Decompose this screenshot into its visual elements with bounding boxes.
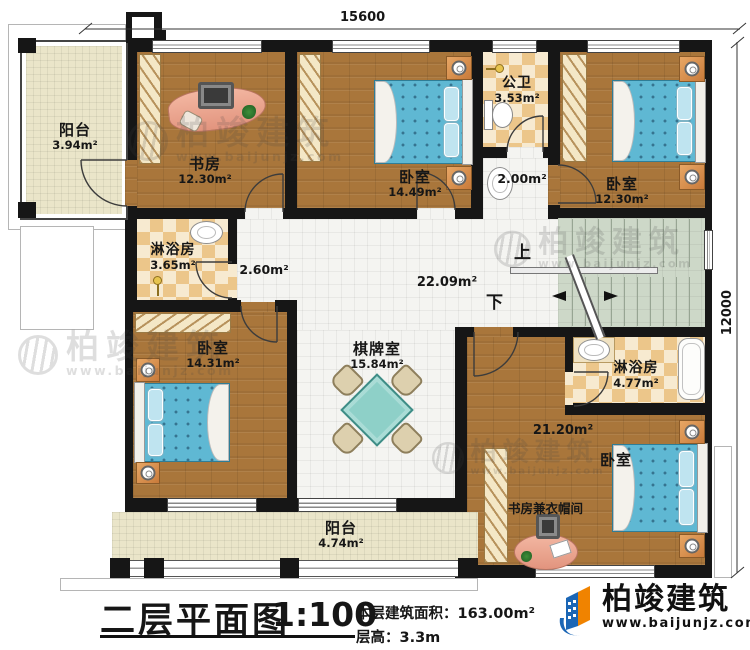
- bed-sheet-fold: [375, 81, 397, 163]
- lamp-icon: [141, 466, 156, 481]
- room-label-bedroom-br: 卧室: [576, 452, 656, 469]
- nightstand: [446, 56, 472, 80]
- room-label-hall-main: 22.09m²: [405, 276, 489, 291]
- pillow: [679, 451, 694, 487]
- dimension-right: 12000: [720, 290, 735, 335]
- pillow: [677, 122, 692, 155]
- bathtub: [678, 338, 705, 400]
- wall: [228, 300, 241, 312]
- nightstand: [679, 56, 705, 82]
- window: [587, 40, 680, 53]
- faucet-icon: [495, 64, 504, 73]
- room-label-wash-area: 2.00m²: [492, 172, 552, 186]
- door-opening: [245, 208, 283, 219]
- bed-headboard: [697, 443, 708, 533]
- window: [492, 40, 537, 53]
- window: [704, 230, 713, 270]
- wall: [287, 310, 297, 330]
- wardrobe: [135, 313, 231, 333]
- column: [18, 38, 36, 53]
- drain-pipe: [157, 284, 159, 296]
- window: [332, 40, 430, 53]
- window: [152, 40, 262, 53]
- room-label-bedroom-br-area: 21.20m²: [522, 424, 604, 439]
- bed-headboard: [462, 79, 473, 165]
- lamp-icon: [685, 170, 700, 185]
- lamp-icon: [685, 539, 700, 554]
- wall: [513, 327, 705, 337]
- lamp-icon: [685, 62, 700, 77]
- window: [298, 498, 397, 512]
- room-label-balcony-tl: 阳台 3.94m²: [35, 122, 115, 152]
- brand-name: 柏竣建筑: [602, 584, 750, 616]
- pillow: [148, 424, 163, 456]
- eave-outline-bottom: [60, 578, 478, 591]
- shaft-opening: [132, 17, 154, 38]
- window: [167, 498, 257, 512]
- door-opening: [507, 147, 543, 158]
- room-label-shower-left: 淋浴房 3.65m²: [133, 243, 213, 272]
- room-label-study-cloak: 书房兼衣帽间: [483, 502, 608, 516]
- pillow: [679, 489, 694, 525]
- nightstand: [679, 164, 705, 190]
- eave-outline-right: [714, 446, 732, 578]
- door-opening: [241, 302, 275, 312]
- pillow: [444, 87, 459, 121]
- pillow: [148, 389, 163, 421]
- floor-area-note: 本层建筑面积：163.00m²: [356, 602, 535, 623]
- bed: [135, 383, 230, 462]
- title-underline: [100, 635, 355, 638]
- door-opening: [483, 208, 548, 219]
- door-opening: [565, 372, 573, 405]
- computer-icon: [198, 82, 234, 109]
- column: [280, 558, 299, 578]
- stair-handrail: [510, 267, 658, 274]
- nightstand: [679, 534, 705, 558]
- door-opening: [474, 327, 513, 337]
- column: [144, 558, 164, 578]
- sink: [578, 339, 610, 361]
- wardrobe: [139, 54, 161, 164]
- lamp-icon: [141, 363, 156, 378]
- stair-direction-arrow: [604, 291, 618, 301]
- floor-height-note: 层高：3.3m: [356, 626, 440, 647]
- nightstand: [679, 420, 705, 444]
- room-label-hall-west: 2.60m²: [233, 263, 295, 277]
- room-label-study: 书房 12.30m²: [155, 156, 255, 186]
- bed-headboard: [134, 382, 145, 463]
- computer-icon: [536, 514, 560, 539]
- eave-outline-left: [20, 226, 94, 330]
- stair-direction-arrow: [552, 291, 566, 301]
- bed: [612, 80, 705, 162]
- door-opening: [125, 160, 137, 206]
- room-label-bedroom-top-right: 卧室 12.30m²: [572, 176, 672, 206]
- nightstand: [136, 462, 160, 484]
- brand-logo-icon: [556, 584, 596, 638]
- lamp-icon: [452, 61, 467, 76]
- wall: [228, 219, 237, 264]
- bed-sheet-fold: [207, 384, 229, 461]
- floor-plan: 上 下 15600 12000 阳台 3.94m² 书房: [0, 0, 750, 650]
- stair-treads: [572, 219, 702, 267]
- bed: [374, 80, 472, 164]
- sink: [190, 221, 223, 244]
- bed-sheet-fold: [613, 81, 635, 161]
- lamp-icon: [685, 425, 700, 440]
- room-label-bedroom-left: 卧室 14.31m²: [163, 340, 263, 370]
- wall: [455, 327, 474, 337]
- nightstand: [136, 358, 160, 382]
- balcony-floor: [112, 512, 478, 561]
- room-label-balcony-bottom: 阳台 4.74m²: [301, 520, 381, 550]
- brand-website: www.baijunjz.com: [602, 616, 750, 631]
- wardrobe: [299, 54, 321, 162]
- room-label-public-bath: 公卫 3.53m²: [477, 76, 557, 105]
- watermark-logo-icon: [18, 335, 58, 375]
- stair-up-label: 上: [514, 238, 531, 263]
- column: [18, 202, 36, 218]
- faucet-pipe: [486, 68, 496, 70]
- column: [110, 558, 130, 578]
- brand-block: 柏竣建筑 www.baijunjz.com: [556, 584, 750, 638]
- toilet-icon: [492, 102, 513, 128]
- stair-down-label: 下: [486, 288, 503, 313]
- pillow: [444, 123, 459, 157]
- pillow: [677, 87, 692, 120]
- bed-headboard: [695, 79, 706, 163]
- dimension-top: 15600: [340, 10, 385, 25]
- column: [458, 558, 478, 578]
- wardrobe: [562, 54, 587, 162]
- room-label-game-room: 棋牌室 15.84m²: [327, 341, 427, 371]
- door-opening: [417, 208, 455, 219]
- room-label-shower-right: 淋浴房 4.77m²: [594, 361, 678, 390]
- room-label-bedroom-top-mid: 卧室 14.49m²: [365, 169, 465, 199]
